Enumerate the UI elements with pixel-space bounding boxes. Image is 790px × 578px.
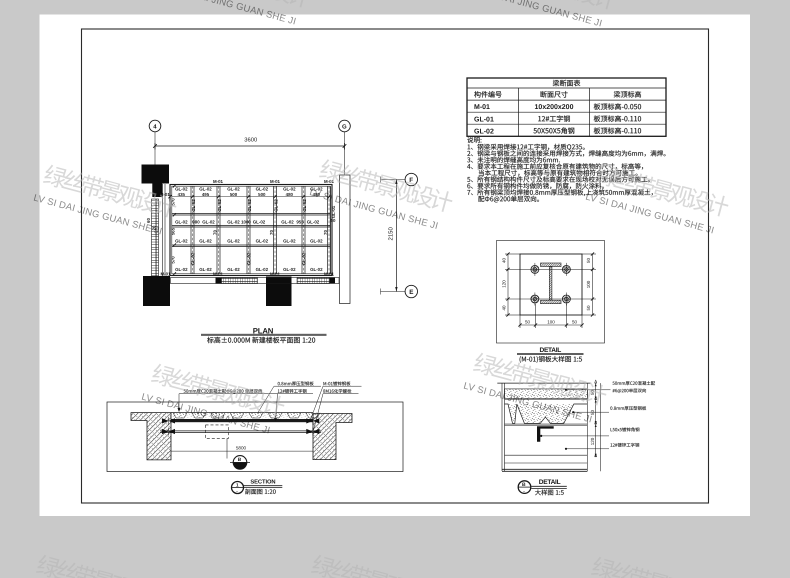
svg-text:GL-02: GL-02 [175, 187, 188, 192]
svg-text:120: 120 [502, 280, 507, 288]
svg-text:GL-02: GL-02 [274, 199, 279, 212]
svg-text:GL-02: GL-02 [199, 267, 212, 272]
svg-text:565: 565 [170, 227, 175, 235]
svg-text:GL-02: GL-02 [191, 199, 196, 212]
svg-text:100: 100 [586, 280, 591, 288]
svg-text:3600: 3600 [244, 136, 257, 143]
svg-text:GL-02: GL-02 [302, 199, 307, 212]
svg-text:480: 480 [286, 192, 294, 197]
svg-text:GL-02: GL-02 [301, 252, 306, 265]
svg-text:GL-02: GL-02 [283, 238, 296, 243]
svg-text:50: 50 [525, 320, 531, 325]
svg-text:M-01: M-01 [324, 271, 335, 276]
svg-text:2150: 2150 [387, 226, 394, 240]
svg-text:GL-02: GL-02 [307, 219, 320, 224]
svg-text:GL-02: GL-02 [227, 267, 240, 272]
svg-text:5800: 5800 [236, 445, 247, 450]
svg-text:M-01: M-01 [160, 271, 171, 276]
svg-text:E: E [409, 289, 413, 296]
svg-text:120: 120 [590, 437, 595, 445]
svg-text:GL-02: GL-02 [310, 238, 323, 243]
svg-text:10x200x200: 10x200x200 [535, 104, 574, 111]
svg-text:50: 50 [586, 258, 591, 264]
svg-text:GL-02: GL-02 [227, 238, 240, 243]
svg-text:40: 40 [502, 258, 507, 264]
svg-text:GL-02: GL-02 [227, 219, 240, 224]
svg-text:SECTION: SECTION [250, 479, 275, 486]
svg-text:100: 100 [547, 320, 555, 325]
svg-text:500: 500 [230, 192, 238, 197]
svg-text:GL-02: GL-02 [199, 187, 212, 192]
svg-text:GL-01: GL-01 [474, 116, 494, 123]
svg-text:M-01: M-01 [270, 179, 281, 184]
svg-text:50: 50 [572, 320, 578, 325]
svg-text:GL-02: GL-02 [283, 267, 296, 272]
svg-text:GL-01: GL-01 [331, 205, 336, 218]
svg-text:GL-02: GL-02 [253, 219, 266, 224]
svg-text:435: 435 [178, 192, 186, 197]
svg-text:1: 1 [236, 482, 239, 487]
svg-text:50: 50 [331, 218, 336, 223]
svg-text:GL-02: GL-02 [283, 187, 296, 192]
svg-text:GL-02: GL-02 [247, 199, 252, 212]
svg-text:GL-02: GL-02 [256, 267, 269, 272]
svg-text:570: 570 [170, 256, 175, 264]
svg-text:40: 40 [502, 305, 507, 311]
svg-text:70: 70 [213, 230, 218, 235]
svg-text:DETAIL: DETAIL [539, 479, 561, 486]
svg-text:M-01: M-01 [474, 104, 490, 111]
svg-text:DETAIL: DETAIL [540, 347, 562, 354]
svg-text:GL-02: GL-02 [256, 187, 269, 192]
svg-text:GL-02: GL-02 [175, 219, 188, 224]
svg-text:GL-02: GL-02 [246, 252, 251, 265]
svg-text:980: 980 [192, 219, 200, 224]
svg-text:70: 70 [269, 230, 274, 235]
svg-text:M-01: M-01 [213, 179, 224, 184]
svg-text:1000: 1000 [241, 219, 251, 224]
svg-text:GL-02: GL-02 [199, 238, 212, 243]
svg-text:M-01: M-01 [270, 271, 281, 276]
svg-text:B: B [238, 457, 242, 463]
svg-text:GL-02: GL-02 [175, 267, 188, 272]
svg-text:GL-02: GL-02 [256, 238, 269, 243]
svg-text:500: 500 [258, 192, 266, 197]
svg-text:495: 495 [202, 192, 210, 197]
svg-text:GL-02: GL-02 [310, 267, 323, 272]
svg-text:GL-02: GL-02 [175, 238, 188, 243]
svg-text:B: B [522, 482, 526, 488]
svg-text:GL-02: GL-02 [217, 199, 222, 212]
svg-text:GL-02: GL-02 [281, 219, 294, 224]
svg-text:G: G [342, 123, 347, 130]
svg-text:M-01: M-01 [213, 271, 224, 276]
svg-text:GL-02: GL-02 [202, 219, 215, 224]
svg-text:50: 50 [586, 305, 591, 311]
svg-text:GL-02: GL-02 [190, 252, 195, 265]
svg-text:955: 955 [296, 219, 304, 224]
svg-text:GL-02: GL-02 [227, 187, 240, 192]
svg-text:GL-02: GL-02 [474, 128, 494, 135]
svg-text:70: 70 [323, 230, 328, 235]
